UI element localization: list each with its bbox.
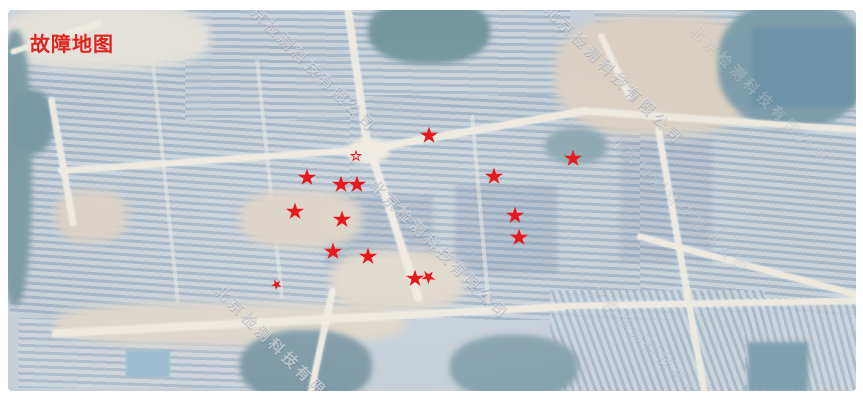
watermark-text: 北京检测科技有限公司 (685, 20, 834, 169)
watermark-text: 北京检测科技有限公司 (540, 10, 689, 149)
fault-map-page: 北京检测科技有限公司北京检测科技有限公司北京检测科技有限公司北京检测科技有限公司… (0, 0, 863, 400)
watermark-text: 北京检测科技有限公司 (605, 130, 754, 279)
watermark-layer: 北京检测科技有限公司北京检测科技有限公司北京检测科技有限公司北京检测科技有限公司… (8, 10, 856, 391)
watermark-text: 北京检测科技有限公司 (210, 280, 359, 391)
watermark-text: 北京检测科技有限公司 (365, 175, 514, 324)
watermark-text: 北京检测科技有限公司 (585, 280, 734, 391)
map-title: 故障地图 (30, 28, 114, 57)
satellite-map[interactable]: 北京检测科技有限公司北京检测科技有限公司北京检测科技有限公司北京检测科技有限公司… (8, 10, 856, 391)
watermark-text: 北京检测科技有限公司 (233, 10, 382, 137)
